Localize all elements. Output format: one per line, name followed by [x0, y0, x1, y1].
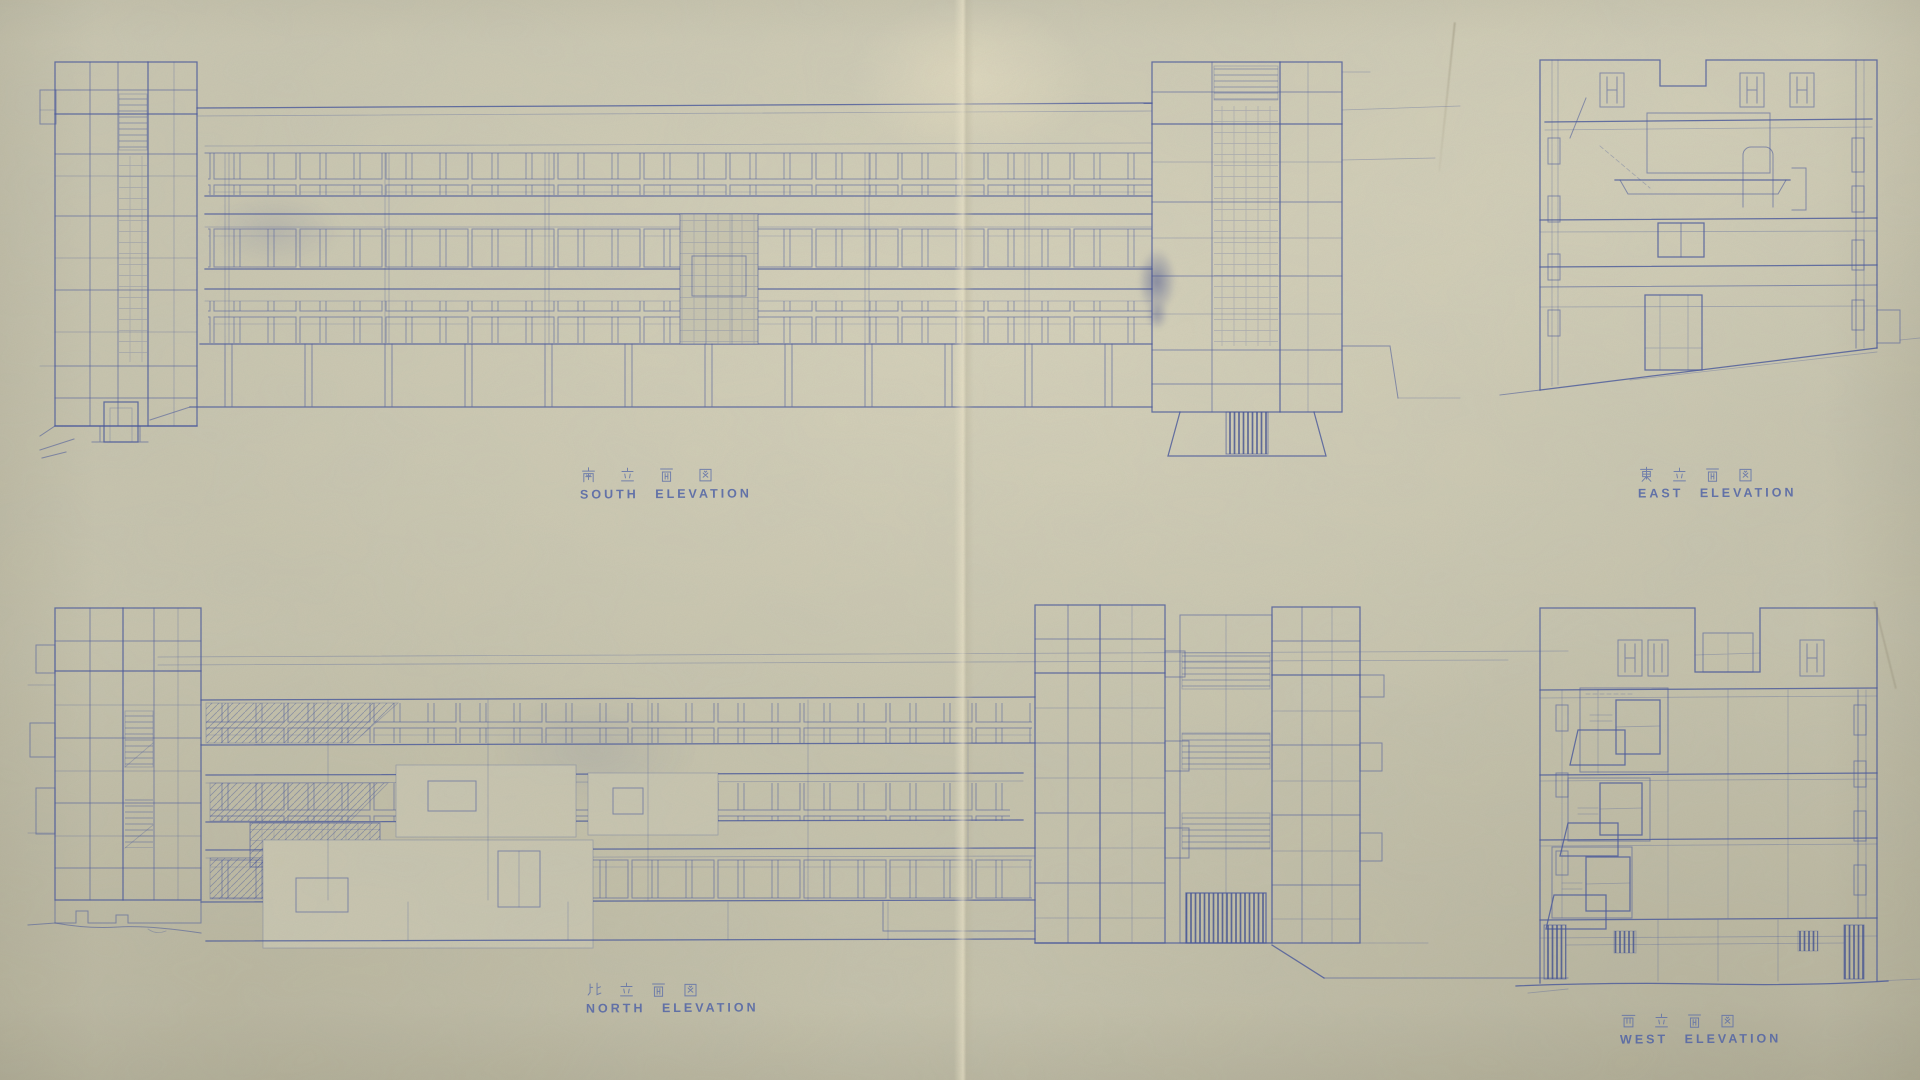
west-elevation-drawing	[1528, 593, 1920, 1043]
west-roof-windows	[1540, 640, 1877, 698]
north-elevation-drawing	[28, 593, 1568, 1033]
south-right-tower	[1152, 62, 1370, 456]
east-floors	[1540, 218, 1877, 370]
south-elevation-drawing	[40, 6, 1460, 476]
south-caption-english: SOUTH ELEVATION	[580, 486, 752, 501]
north-main-facade	[201, 697, 1035, 948]
north-right-towers	[1035, 605, 1384, 943]
south-pilotis	[150, 344, 1152, 420]
south-main-slab	[150, 103, 1152, 420]
east-roof-windows	[1545, 73, 1872, 130]
east-elevation-drawing	[1500, 18, 1920, 498]
south-context-lines	[1342, 106, 1460, 398]
south-left-tower	[40, 62, 197, 458]
east-side-strips	[1548, 60, 1920, 386]
north-left-tower	[28, 608, 201, 923]
blueprint-sheet: 南立面図 SOUTH ELEVATION 東立面図 EAST ELEVATION…	[0, 0, 1920, 1080]
east-penthouse	[1570, 98, 1806, 210]
east-outline	[1500, 60, 1877, 395]
west-outline	[1540, 608, 1877, 983]
north-context-lines	[158, 651, 1568, 665]
north-ground	[28, 923, 1568, 978]
west-balcony-cascade	[1546, 688, 1668, 929]
